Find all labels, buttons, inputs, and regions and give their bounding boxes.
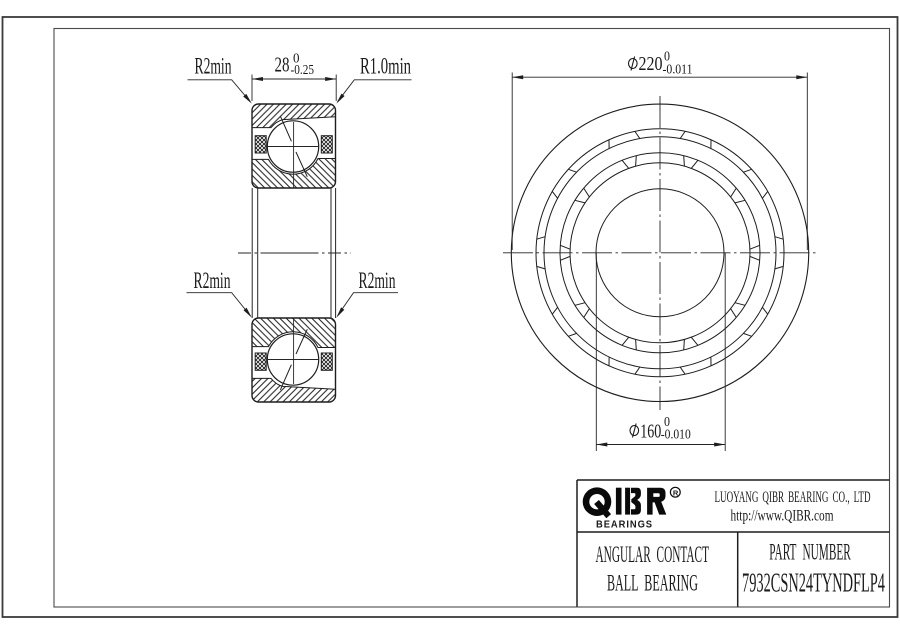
svg-text:LUOYANG QIBR BEARING CO., LTD: LUOYANG QIBR BEARING CO., LTD <box>715 489 871 506</box>
svg-text:160: 160 <box>640 421 661 443</box>
svg-text:http://www.QIBR.com: http://www.QIBR.com <box>731 508 834 525</box>
svg-text:-0.010: -0.010 <box>661 427 691 442</box>
svg-text:-0.011: -0.011 <box>663 62 693 77</box>
svg-text:ANGULAR CONTACT: ANGULAR CONTACT <box>596 542 710 567</box>
svg-text:R: R <box>673 488 679 497</box>
svg-text:BEARINGS: BEARINGS <box>596 520 653 531</box>
svg-text:R2min: R2min <box>195 54 232 79</box>
svg-text:PART NUMBER: PART NUMBER <box>769 540 851 565</box>
svg-text:220: 220 <box>639 53 663 75</box>
svg-text:28: 28 <box>275 53 290 77</box>
svg-text:BALL BEARING: BALL BEARING <box>607 570 698 595</box>
svg-text:R2min: R2min <box>194 268 231 293</box>
svg-text:-0.25: -0.25 <box>291 62 315 77</box>
svg-text:R1.0min: R1.0min <box>360 54 411 79</box>
svg-text:7932CSN24TYNDFLP4: 7932CSN24TYNDFLP4 <box>742 568 885 598</box>
svg-text:R2min: R2min <box>359 268 396 293</box>
